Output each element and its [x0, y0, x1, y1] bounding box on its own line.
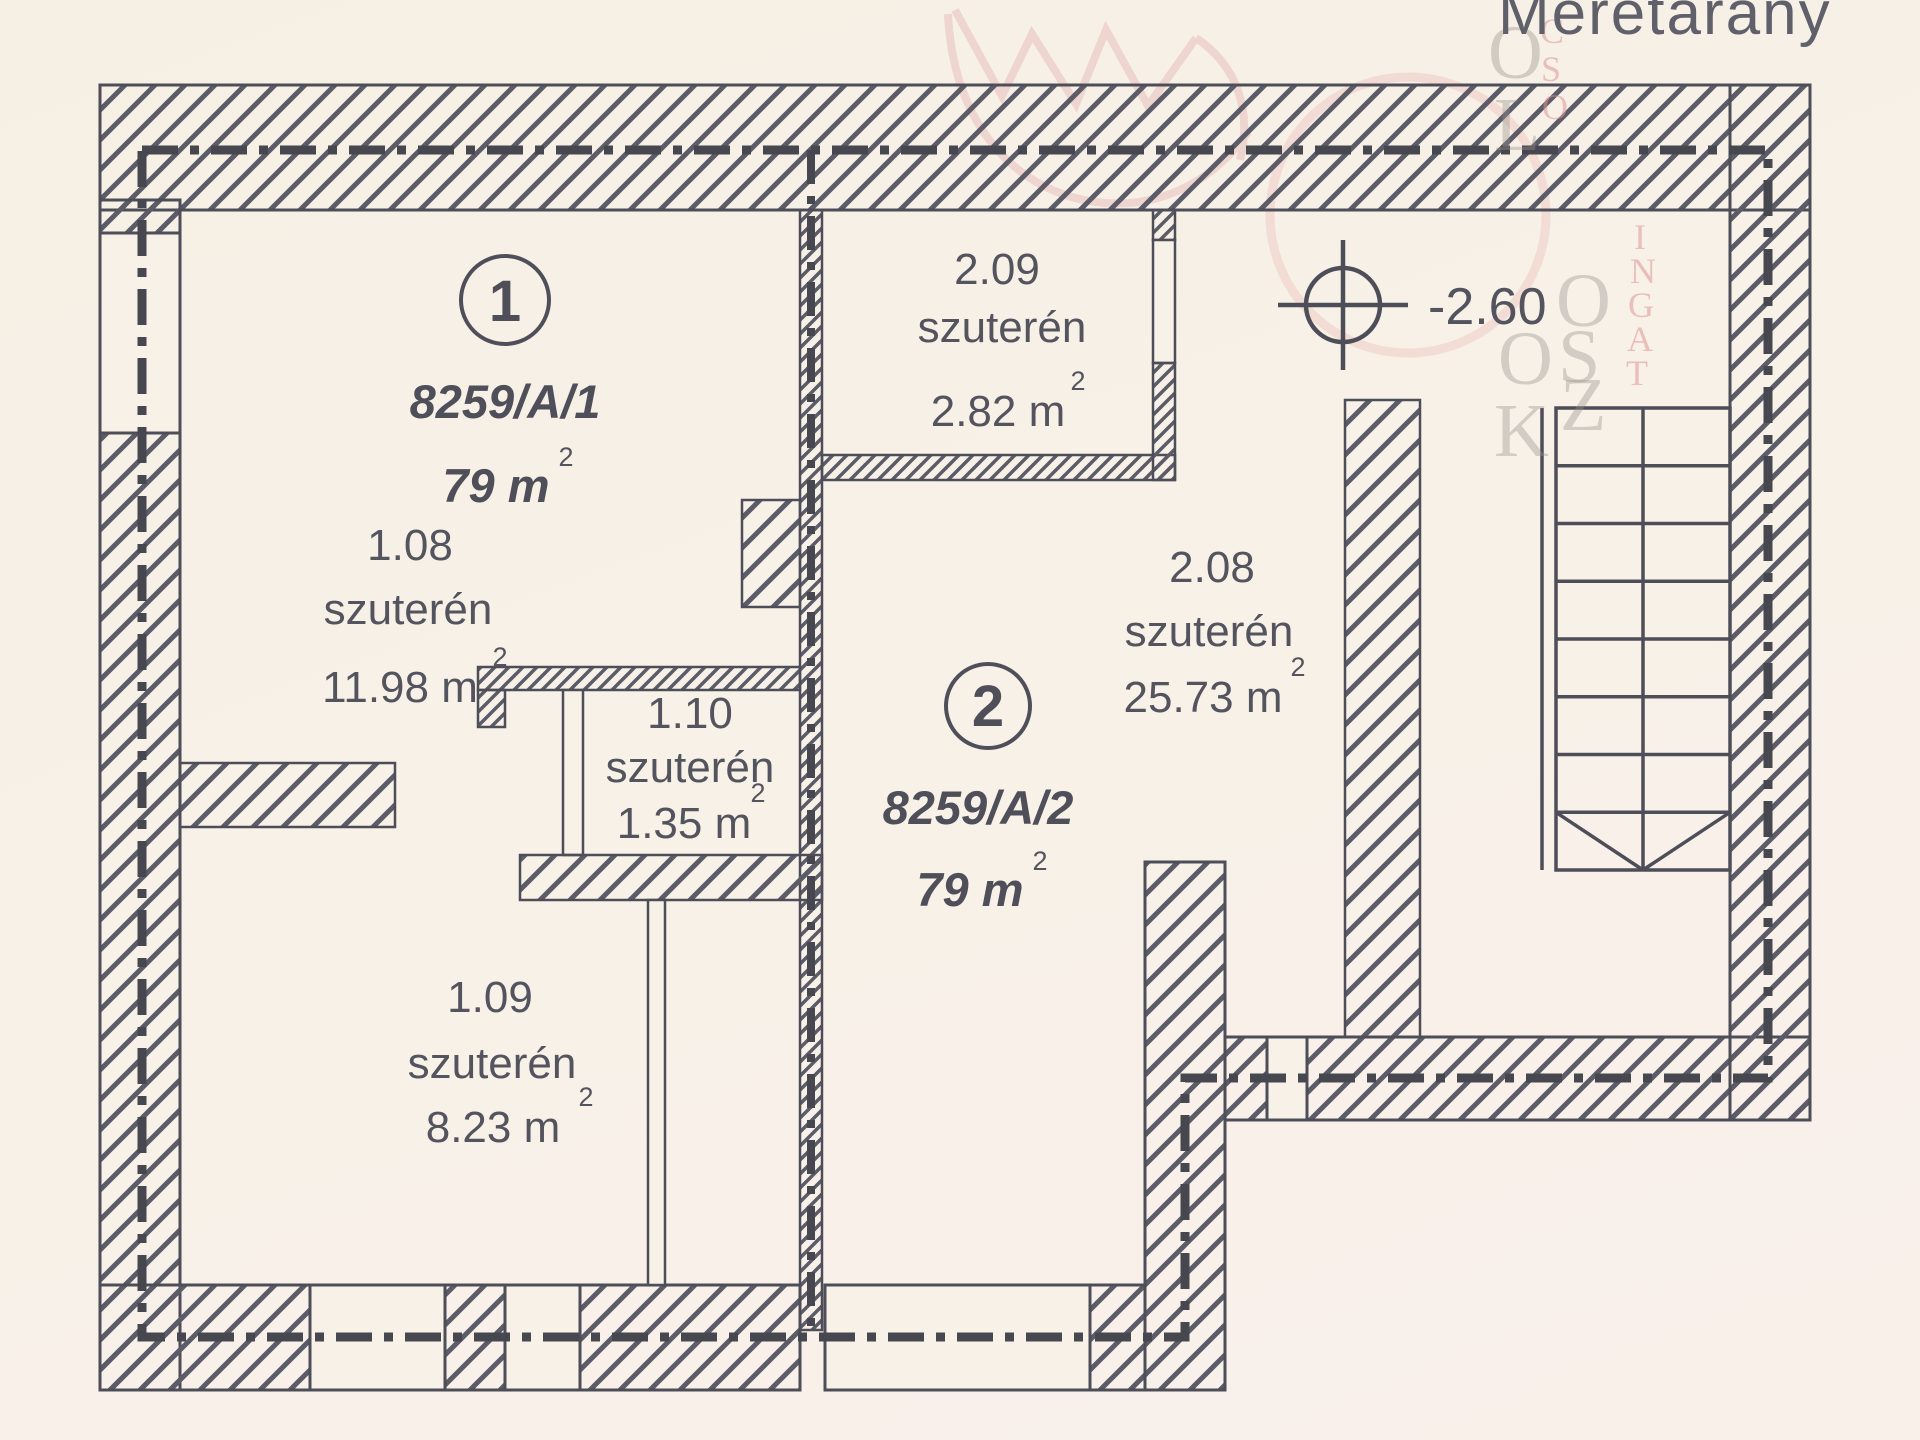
room-110-labels: 1.10 szuterén 1.35 m 2: [606, 689, 775, 848]
unit-2-area-sup: 2: [1032, 846, 1047, 876]
room-area-label: 8.23 m: [426, 1103, 561, 1152]
room-109-labels: 1.09 szuterén 8.23 m 2: [408, 973, 594, 1152]
room-area-label: 11.98 m: [322, 663, 478, 712]
room-code-label: 1.10: [647, 689, 733, 738]
room-type-label: szuterén: [1125, 607, 1294, 656]
room-area-sup: 2: [578, 1082, 593, 1112]
floor-plan-page: -2.60 1 8259/A/1 79 m 2 2 8259/A/2 79 m …: [0, 0, 1920, 1440]
interior-walls: [180, 210, 1420, 1330]
stairs: [1542, 408, 1730, 870]
room-area-sup: 2: [492, 642, 507, 672]
room-type-label: szuterén: [606, 743, 775, 792]
wall-110-top: [478, 667, 800, 690]
wall-110-stub: [478, 690, 505, 727]
scale-title: Méretarány: [1498, 0, 1832, 49]
unit-2-plot-label: 8259/A/2: [883, 781, 1074, 834]
stair-break-diagonal: [1556, 812, 1643, 870]
unit-1-area-sup: 2: [558, 442, 573, 472]
room-area-sup: 2: [1070, 366, 1085, 396]
room-type-label: szuterén: [408, 1039, 577, 1088]
room-type-label: szuterén: [918, 303, 1087, 352]
room-area-sup: 2: [750, 778, 765, 808]
room-area-sup: 2: [1290, 652, 1305, 682]
unit-2-number: 2: [972, 674, 1004, 739]
window-left: [100, 233, 180, 433]
room-area-label: 2.82 m: [931, 387, 1066, 436]
wall-110-bottom: [520, 855, 822, 900]
room-type-label: szuterén: [324, 585, 493, 634]
room-code-label: 1.08: [367, 521, 453, 570]
wall-209-bottom: [822, 455, 1175, 480]
stair-break-diagonal: [1643, 812, 1730, 870]
wall-pier-room1: [742, 500, 800, 607]
level-value-label: -2.60: [1428, 278, 1547, 336]
unit-1-labels: 1 8259/A/1 79 m 2: [410, 256, 601, 512]
room-area-label: 1.35 m: [617, 799, 752, 848]
room-code-label: 1.09: [447, 973, 533, 1022]
unit-2-area-label: 79 m: [916, 863, 1023, 916]
unit-1-plot-label: 8259/A/1: [410, 375, 601, 428]
unit-1-area-label: 79 m: [442, 459, 549, 512]
unit-1-number: 1: [489, 269, 521, 334]
wall-209-right-lower: [1153, 363, 1175, 480]
room-code-label: 2.08: [1169, 543, 1255, 592]
door-209: [1153, 240, 1175, 363]
wall-108-109-divider: [180, 763, 395, 827]
room-code-label: 2.09: [954, 245, 1040, 294]
wall-pier-208: [1345, 400, 1420, 1037]
wall-110-left: [563, 690, 583, 855]
room-208-labels: 2.08 szuterén 25.73 m 2: [1124, 543, 1306, 722]
room-area-label: 25.73 m: [1124, 673, 1283, 722]
unit-2-labels: 2 8259/A/2 79 m 2: [883, 664, 1074, 916]
floor-plan-svg: -2.60 1 8259/A/1 79 m 2 2 8259/A/2 79 m …: [0, 0, 1920, 1440]
wall-thin-descender: [648, 900, 665, 1285]
wall-209-right-upper: [1153, 210, 1175, 240]
room-209-labels: 2.09 szuterén 2.82 m 2: [918, 245, 1087, 436]
